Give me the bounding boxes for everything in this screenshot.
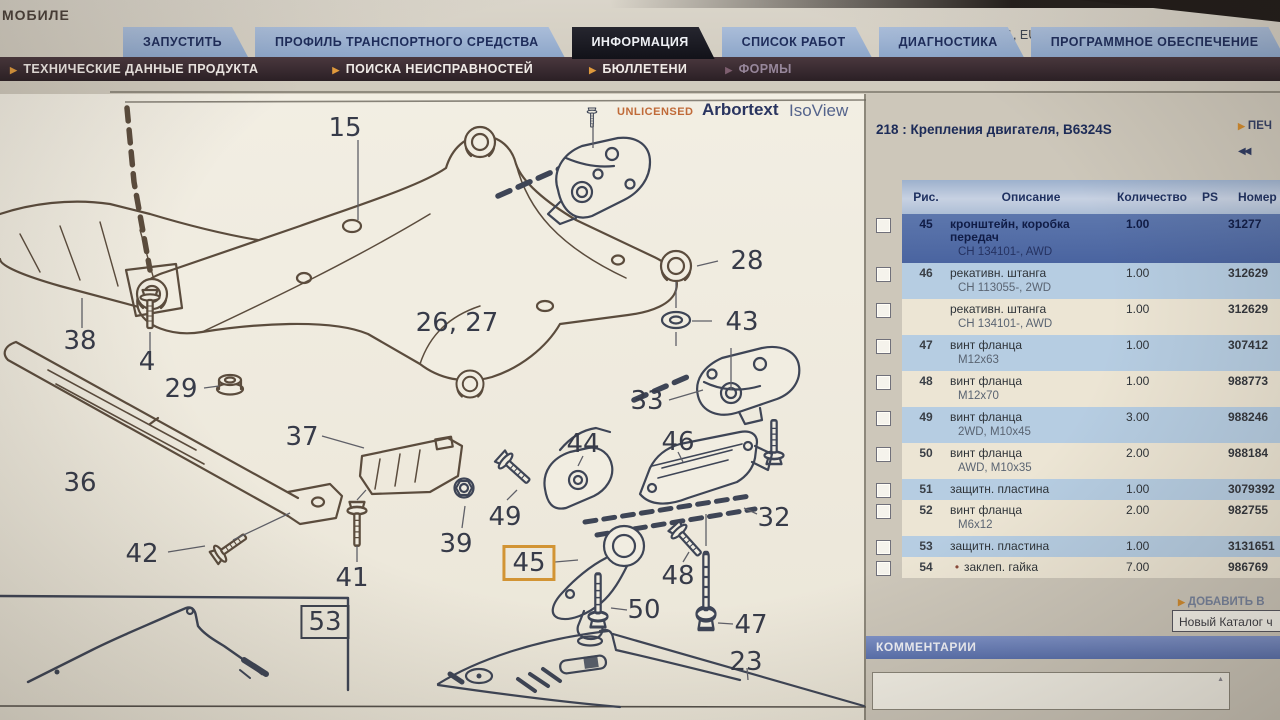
description-main: винт фланца xyxy=(950,447,1108,460)
checkbox-cell xyxy=(870,557,902,576)
row-checkbox[interactable] xyxy=(876,483,891,498)
header-fig: Рис. xyxy=(902,190,950,204)
description-sub: CH 113055-, 2WD xyxy=(950,282,1108,295)
description-main: винт фланца xyxy=(950,375,1108,388)
row-checkbox[interactable] xyxy=(876,339,891,354)
cell-fig: 51 xyxy=(902,483,950,496)
arbortext-logo: Arbortext xyxy=(702,100,779,120)
print-label: ПЕЧ xyxy=(1248,120,1272,132)
checkbox-cell xyxy=(870,407,902,426)
cell-description: рекативн. штангаCH 113055-, 2WD xyxy=(950,267,1112,295)
row-checkbox[interactable] xyxy=(876,267,891,282)
row-stripe: 54•заклеп. гайка7.00986769 xyxy=(902,557,1280,578)
tab-информация[interactable]: ИНФОРМАЦИЯ xyxy=(572,27,715,59)
row-stripe: 50винт фланцаAWD, M10x352.00988184 xyxy=(902,443,1280,479)
cell-fig: 50 xyxy=(902,447,950,460)
checkbox-cell xyxy=(870,371,902,390)
diagram-labels-layer: 152826, 27433842933374446364932394542484… xyxy=(0,94,864,720)
diagram-callout-29[interactable]: 29 xyxy=(164,374,197,404)
subnav-item-4[interactable]: ▶ФОРМЫ xyxy=(725,62,792,76)
description-main: винт фланца xyxy=(950,504,1108,517)
table-row-51[interactable]: 51защитн. пластина1.003079392 xyxy=(870,479,1280,500)
table-row-45[interactable]: 45кронштейн, коробка передачCH 134101-, … xyxy=(870,214,1280,263)
cell-quantity: 1.00 xyxy=(1112,375,1192,388)
tab-программное-обеспечение[interactable]: ПРОГРАММНОЕ ОБЕСПЕЧЕНИЕ xyxy=(1031,27,1280,57)
checkbox-cell xyxy=(870,263,902,282)
subnav-item-2[interactable]: ▶ПОИСКА НЕИСПРАВНОСТЕЙ xyxy=(332,62,533,76)
description-main: винт фланца xyxy=(950,339,1108,352)
row-stripe: 45кронштейн, коробка передачCH 134101-, … xyxy=(902,214,1280,263)
cell-fig: 48 xyxy=(902,375,950,388)
cell-description: винт фланцаAWD, M10x35 xyxy=(950,447,1112,475)
row-stripe: 46рекативн. штангаCH 113055-, 2WD1.00312… xyxy=(902,263,1280,299)
subnav-item-3[interactable]: ▶БЮЛЛЕТЕНИ xyxy=(589,62,687,76)
cell-quantity: 2.00 xyxy=(1112,447,1192,460)
description-main: •заклеп. гайка xyxy=(950,561,1108,574)
description-sub: CH 134101-, AWD xyxy=(950,246,1108,259)
cell-part-number: 31277 xyxy=(1228,218,1280,231)
cell-quantity: 1.00 xyxy=(1112,267,1192,280)
description-main: рекативн. штанга xyxy=(950,303,1108,316)
description-main: винт фланца xyxy=(950,411,1108,424)
checkbox-cell xyxy=(870,536,902,555)
cell-quantity: 1.00 xyxy=(1112,218,1192,231)
collapse-panel-button[interactable]: ◀◀ xyxy=(1238,146,1249,157)
subnav-arrow-icon: ▶ xyxy=(725,65,732,75)
cell-fig: 46 xyxy=(902,267,950,280)
diagram-callout-36[interactable]: 36 xyxy=(63,468,96,498)
parts-table-header: Рис. Описание Количество PS Номер части xyxy=(902,180,1280,214)
checkbox-cell xyxy=(870,500,902,519)
cell-quantity: 1.00 xyxy=(1112,483,1192,496)
description-sub: M12x70 xyxy=(950,390,1108,403)
row-checkbox[interactable] xyxy=(876,375,891,390)
add-label: ДОБАВИТЬ В xyxy=(1188,596,1265,608)
section-title: 218 : Крепления двигателя, B6324S xyxy=(876,122,1112,137)
diagram-callout-38[interactable]: 38 xyxy=(63,326,96,356)
cell-description: винт фланцаM6x12 xyxy=(950,504,1112,532)
cell-description: защитн. пластина xyxy=(950,540,1112,553)
cell-description: винт фланца2WD, M10x45 xyxy=(950,411,1112,439)
cell-fig: 45 xyxy=(902,218,950,231)
isoview-logo: IsoView xyxy=(789,101,848,121)
cell-quantity: 1.00 xyxy=(1112,540,1192,553)
cell-quantity: 1.00 xyxy=(1112,339,1192,352)
cell-fig: 53 xyxy=(902,540,950,553)
table-row-49[interactable]: 49винт фланца2WD, M10x453.00988246 xyxy=(870,407,1280,443)
cell-description: защитн. пластина xyxy=(950,483,1112,496)
diagram-callout-46[interactable]: 46 xyxy=(661,427,694,457)
table-row-47[interactable]: 47винт фланцаM12x631.00307412 xyxy=(870,335,1280,371)
subnav-arrow-icon: ▶ xyxy=(589,65,596,75)
header-description: Описание xyxy=(950,190,1112,204)
comments-textarea[interactable]: ▲ xyxy=(872,672,1230,710)
cell-quantity: 7.00 xyxy=(1112,561,1192,574)
cell-fig: 49 xyxy=(902,411,950,424)
description-sub: M12x63 xyxy=(950,354,1108,367)
description-main: рекативн. штанга xyxy=(950,267,1108,280)
cell-description: рекативн. штангаCH 134101-, AWD xyxy=(950,303,1112,331)
cell-fig: 52 xyxy=(902,504,950,517)
app-brand-text: МОБИЛЕ xyxy=(2,7,70,23)
row-checkbox[interactable] xyxy=(876,540,891,555)
diagram-callout-50[interactable]: 50 xyxy=(627,595,660,625)
header-ps: PS xyxy=(1192,190,1228,204)
cell-part-number: 3079392 xyxy=(1228,483,1280,496)
unlicensed-watermark: UNLICENSED xyxy=(617,106,694,118)
table-row-48[interactable]: 48винт фланцаM12x701.00988773 xyxy=(870,371,1280,407)
row-stripe: 49винт фланца2WD, M10x453.00988246 xyxy=(902,407,1280,443)
diagram-callout-45[interactable]: 45 xyxy=(502,545,555,581)
cell-part-number: 988246 xyxy=(1228,411,1280,424)
description-main: защитн. пластина xyxy=(950,483,1108,496)
bullet-icon: • xyxy=(950,561,964,574)
subnav-item-1[interactable]: ▶ТЕХНИЧЕСКИЕ ДАННЫЕ ПРОДУКТА xyxy=(10,62,258,76)
cell-part-number: 982755 xyxy=(1228,504,1280,517)
cell-fig: 54 xyxy=(902,561,950,574)
table-row-54[interactable]: 54•заклеп. гайка7.00986769 xyxy=(870,557,1280,578)
table-row-46[interactable]: 46рекативн. штангаCH 113055-, 2WD1.00312… xyxy=(870,263,1280,299)
cell-description: винт фланцаM12x63 xyxy=(950,339,1112,367)
table-row[interactable]: рекативн. штангаCH 134101-, AWD1.0031262… xyxy=(870,299,1280,335)
diagram-callout-49[interactable]: 49 xyxy=(488,502,521,532)
diagram-callout-48[interactable]: 48 xyxy=(661,561,694,591)
cell-part-number: 307412 xyxy=(1228,339,1280,352)
row-stripe: 52винт фланцаM6x122.00982755 xyxy=(902,500,1280,536)
checkbox-cell xyxy=(870,335,902,354)
tab-запустить[interactable]: ЗАПУСТИТЬ xyxy=(123,27,248,57)
row-checkbox[interactable] xyxy=(876,303,891,318)
diagram-callout-44[interactable]: 44 xyxy=(566,429,599,459)
cell-description: •заклеп. гайка xyxy=(950,561,1112,574)
cell-part-number: 988773 xyxy=(1228,375,1280,388)
diagram-callout-23[interactable]: 23 xyxy=(729,647,762,677)
row-stripe: 48винт фланцаM12x701.00988773 xyxy=(902,371,1280,407)
description-sub: AWD, M10x35 xyxy=(950,462,1108,475)
tab-диагностика[interactable]: ДИАГНОСТИКА xyxy=(879,27,1024,57)
row-checkbox[interactable] xyxy=(876,504,891,519)
cell-quantity: 2.00 xyxy=(1112,504,1192,517)
table-row-53[interactable]: 53защитн. пластина1.003131651 xyxy=(870,536,1280,557)
row-stripe: 47винт фланцаM12x631.00307412 xyxy=(902,335,1280,371)
row-checkbox[interactable] xyxy=(876,561,891,576)
add-to-link[interactable]: ▶ДОБАВИТЬ В xyxy=(1178,596,1265,608)
checkbox-cell xyxy=(870,214,902,233)
parts-diagram-viewer[interactable]: UNLICENSED Arbortext IsoView xyxy=(0,94,866,720)
comments-header: КОММЕНТАРИИ xyxy=(866,636,1280,659)
row-checkbox[interactable] xyxy=(876,218,891,233)
cell-part-number: 312629 xyxy=(1228,267,1280,280)
cell-part-number: 986769 xyxy=(1228,561,1280,574)
diagram-callout-26-27[interactable]: 26, 27 xyxy=(416,308,499,338)
cell-description: кронштейн, коробка передачCH 134101-, AW… xyxy=(950,218,1112,259)
application-window: МОБИЛЕ 1, EUR ▸ВЫЙТИ ИЗ СИСТ ЗАПУСТИТЬПР… xyxy=(0,0,1280,720)
description-main: кронштейн, коробка передач xyxy=(950,218,1108,244)
tab-профиль-транспортного-средства[interactable]: ПРОФИЛЬ ТРАНСПОРТНОГО СРЕДСТВА xyxy=(255,27,565,57)
checkbox-cell xyxy=(870,299,902,318)
header-part-number: Номер части xyxy=(1228,191,1280,204)
parts-list-panel: 218 : Крепления двигателя, B6324S ▶ПЕЧ ◀… xyxy=(866,94,1280,720)
cell-part-number: 312629 xyxy=(1228,303,1280,316)
diagram-callout-42[interactable]: 42 xyxy=(125,539,158,569)
sub-nav-bar: ▶ТЕХНИЧЕСКИЕ ДАННЫЕ ПРОДУКТА▶ПОИСКА НЕИС… xyxy=(0,57,1280,81)
checkbox-cell xyxy=(870,479,902,498)
description-main: защитн. пластина xyxy=(950,540,1108,553)
row-checkbox[interactable] xyxy=(876,447,891,462)
diagram-callout-47[interactable]: 47 xyxy=(734,610,767,640)
diagram-callout-37[interactable]: 37 xyxy=(285,422,318,452)
diagram-callout-53[interactable]: 53 xyxy=(300,605,349,639)
row-stripe: рекативн. штангаCH 134101-, AWD1.0031262… xyxy=(902,299,1280,335)
cell-quantity: 1.00 xyxy=(1112,303,1192,316)
checkbox-cell xyxy=(870,443,902,462)
subnav-arrow-icon: ▶ xyxy=(10,65,17,75)
parts-table-rows: 45кронштейн, коробка передачCH 134101-, … xyxy=(870,214,1280,578)
description-sub: CH 134101-, AWD xyxy=(950,318,1108,331)
print-link[interactable]: ▶ПЕЧ xyxy=(1238,120,1272,132)
diagram-callout-15[interactable]: 15 xyxy=(328,113,361,143)
diagram-callout-39[interactable]: 39 xyxy=(439,529,472,559)
diagram-callout-41[interactable]: 41 xyxy=(335,563,368,593)
content-divider xyxy=(110,91,1280,93)
diagram-callout-33[interactable]: 33 xyxy=(630,386,663,416)
row-checkbox[interactable] xyxy=(876,411,891,426)
table-row-52[interactable]: 52винт фланцаM6x122.00982755 xyxy=(870,500,1280,536)
diagram-callout-43[interactable]: 43 xyxy=(725,307,758,337)
tab-список-работ[interactable]: СПИСОК РАБОТ xyxy=(722,27,872,57)
description-sub: 2WD, M10x45 xyxy=(950,426,1108,439)
cell-part-number: 3131651 xyxy=(1228,540,1280,553)
diagram-callout-28[interactable]: 28 xyxy=(730,246,763,276)
main-tab-bar: ЗАПУСТИТЬПРОФИЛЬ ТРАНСПОРТНОГО СРЕДСТВАИ… xyxy=(123,27,1280,57)
add-arrow-icon: ▶ xyxy=(1178,597,1185,607)
row-stripe: 53защитн. пластина1.003131651 xyxy=(902,536,1280,557)
print-arrow-icon: ▶ xyxy=(1238,121,1245,131)
scroll-up-icon: ▲ xyxy=(1217,676,1224,683)
subnav-arrow-icon: ▶ xyxy=(332,65,339,75)
cell-quantity: 3.00 xyxy=(1112,411,1192,424)
catalog-dropdown[interactable]: Новый Каталог ч xyxy=(1172,610,1280,632)
cell-description: винт фланцаM12x70 xyxy=(950,375,1112,403)
diagram-callout-32[interactable]: 32 xyxy=(757,503,790,533)
table-row-50[interactable]: 50винт фланцаAWD, M10x352.00988184 xyxy=(870,443,1280,479)
row-stripe: 51защитн. пластина1.003079392 xyxy=(902,479,1280,500)
diagram-callout-4[interactable]: 4 xyxy=(139,347,156,377)
cell-fig: 47 xyxy=(902,339,950,352)
description-sub: M6x12 xyxy=(950,519,1108,532)
header-quantity: Количество xyxy=(1112,190,1192,204)
cell-part-number: 988184 xyxy=(1228,447,1280,460)
